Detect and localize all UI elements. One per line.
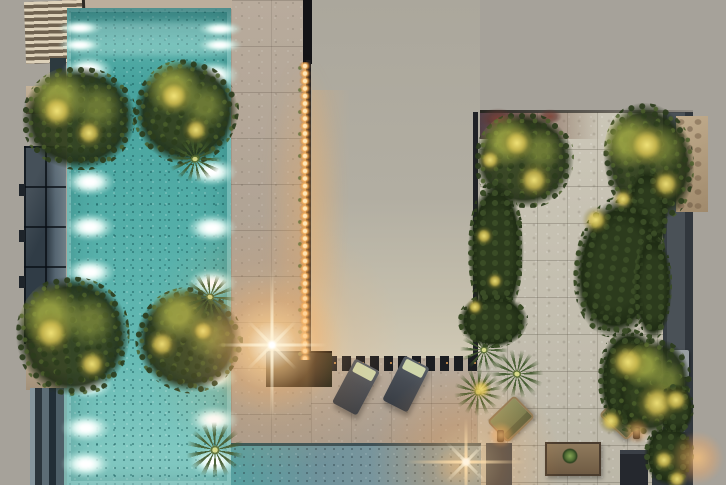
pool-light: [198, 38, 242, 53]
lit-foliage: [76, 348, 108, 380]
flare-core: [268, 341, 276, 349]
lit-foliage: [156, 78, 192, 114]
pool-light: [198, 22, 242, 37]
facade-tab: [19, 276, 25, 288]
lit-foliage: [74, 118, 104, 148]
lit-foliage: [486, 272, 504, 290]
flare-core: [462, 458, 470, 466]
lit-foliage: [582, 206, 610, 234]
pool-light: [65, 213, 115, 241]
lantern-glow: [624, 418, 650, 444]
lit-foliage: [662, 386, 690, 414]
garden-light-glow: [670, 431, 724, 485]
facade-tab: [19, 230, 25, 242]
pool-light: [58, 21, 102, 36]
rooftop-terrace-render: [0, 0, 726, 485]
lantern-glow: [488, 422, 514, 448]
lit-foliage: [38, 92, 76, 130]
lit-foliage: [182, 116, 210, 144]
pool-light: [65, 168, 115, 196]
lit-foliage: [650, 168, 682, 200]
roof-edge-left-top: [303, 0, 312, 64]
lit-foliage: [466, 298, 484, 316]
lit-foliage: [608, 342, 648, 382]
lit-foliage: [474, 226, 494, 246]
lit-foliage: [30, 312, 72, 354]
lit-foliage: [478, 148, 502, 172]
lit-foliage: [626, 124, 668, 166]
flare-ray: [465, 418, 468, 485]
table-plant: [562, 448, 578, 464]
pool-light: [61, 450, 111, 478]
pool-light: [61, 414, 111, 442]
pool-light: [58, 38, 102, 53]
lit-foliage: [516, 162, 552, 198]
facade-tab: [19, 184, 25, 196]
lit-foliage: [598, 408, 624, 434]
lit-foliage: [500, 126, 534, 160]
lit-foliage: [612, 188, 634, 210]
